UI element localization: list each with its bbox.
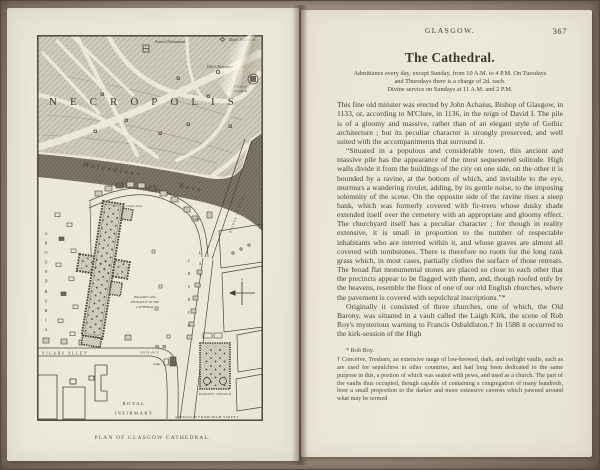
map-label-chapter-house: Chapter house — [126, 205, 143, 208]
paragraph-2: “Situated in a populous and considerable… — [337, 146, 563, 302]
map-label-compass-n: N — [241, 279, 243, 282]
map-label-infirmary: INFIRMARY — [114, 411, 153, 416]
map-label-dyke-monument: Dyke's Monument — [206, 65, 234, 69]
map-label-royal: ROYAL — [123, 401, 146, 406]
burial-plots — [55, 213, 78, 336]
notice-line-2: and Thursdays there is a charge of 2d. e… — [337, 78, 563, 86]
royal-infirmary-buildings — [38, 365, 107, 419]
map-label-lodge-bridge: Lodge — [192, 217, 201, 221]
map-label-knox-monument: Knox's Monument — [155, 39, 186, 44]
notice-line-3: Divine service on Sundays at 11 A.M. and… — [337, 86, 563, 94]
map-label-lodge-gate: Lodge — [152, 362, 161, 366]
footnote-1: * Rob Roy. — [337, 347, 563, 355]
footnote-2: † Conceive, Tresham, an extensive range … — [337, 356, 563, 403]
body-text: This fine old minster was erected by Joh… — [337, 100, 563, 338]
map-label-black-monument: Black's Monument — [229, 38, 257, 42]
paragraph-3: Originally it consisted of three churche… — [337, 302, 563, 339]
chapter-title: The Cathedral. — [337, 50, 563, 66]
left-page: Knox's Monument Black's Monument Dyke's … — [7, 8, 299, 461]
map-label-barony-church: BARONY CHURCH — [199, 392, 232, 396]
map-label-necropolis: NECROPOLIS — [49, 96, 247, 108]
page-number: 367 — [553, 26, 567, 36]
map-caption: PLAN OF GLASGOW CATHEDRAL. — [7, 435, 299, 441]
admission-notice: Admittance every day, except Sunday, fro… — [337, 70, 563, 94]
map-label-cathedral-entrance-2: CATHEDRAL — [136, 305, 154, 309]
map-label-vicars-alley: VICARS ALLEY — [42, 351, 88, 355]
right-page: GLASGOW. 367 The Cathedral. Admittance e… — [301, 10, 592, 457]
map-label-cathedral-entrance-1: ENTRANCE TO THE — [131, 300, 159, 304]
running-title: GLASGOW. — [337, 26, 563, 35]
map-label-mcgavin-line2: Monument — [233, 89, 248, 93]
glasgow-cathedral-map: Knox's Monument Black's Monument Dyke's … — [37, 35, 263, 421]
running-head: GLASGOW. 367 — [337, 26, 563, 36]
map-label-burial-upper: GROUND — [44, 231, 49, 288]
footnotes: * Rob Roy. † Conceive, Tresham, an exten… — [337, 347, 563, 403]
map-label-burial-lower: BURIAL — [44, 289, 49, 346]
paragraph-1: This fine old minster was erected by Joh… — [337, 100, 563, 146]
map-label-aisle: Blackadder's Aisle — [134, 295, 156, 299]
compass-rose — [230, 282, 255, 305]
cathedral-plan — [66, 199, 139, 350]
map-label-entrance: ENTRANCE — [141, 352, 159, 355]
map-label-approach: APPROACH FROM HIGH STREET — [175, 415, 239, 419]
notice-line-1: Admittance every day, except Sunday, fro… — [337, 70, 563, 78]
barony-church-building — [200, 333, 230, 389]
